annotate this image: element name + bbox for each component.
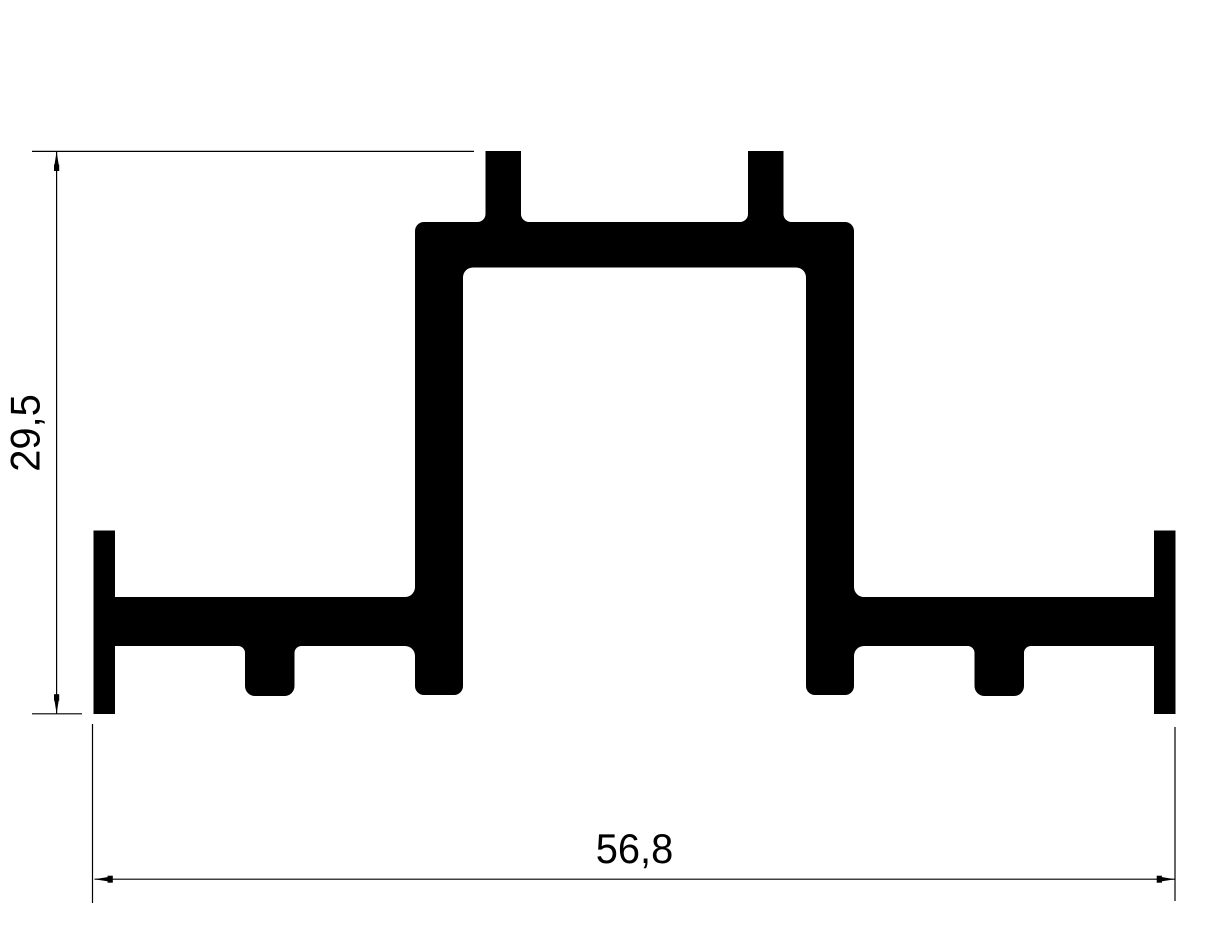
svg-text:56,8: 56,8 <box>596 825 674 872</box>
svg-text:29,5: 29,5 <box>1 394 48 472</box>
